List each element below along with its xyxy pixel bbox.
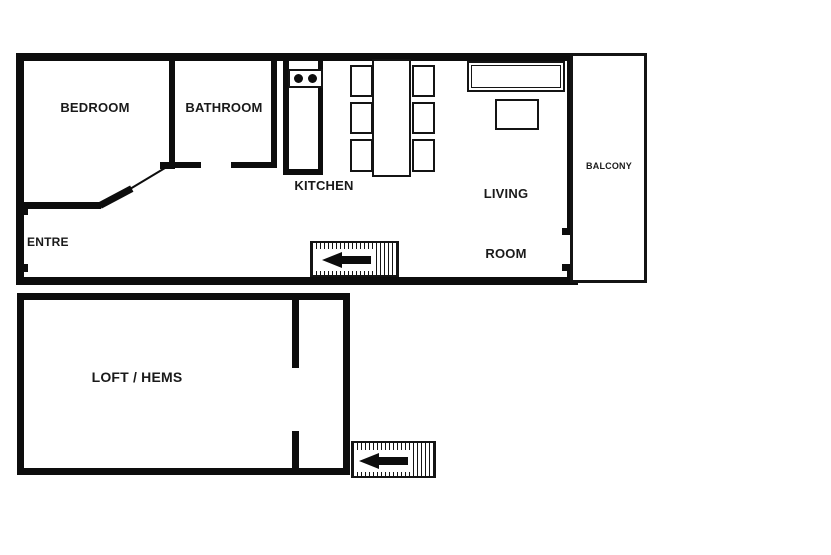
balcony-label: BALCONY (574, 161, 644, 171)
upper-wall-top (16, 53, 578, 61)
dining-table-icon (372, 59, 411, 177)
living-room-label-line2: ROOM (456, 244, 556, 264)
sofa-icon (467, 61, 565, 92)
floor-plan-canvas: BEDROOM BATHROOM KITCHEN LIVING ROOM BAL… (0, 0, 831, 555)
stairs-upper-arrow-halo (316, 249, 376, 271)
arrow-head (322, 252, 342, 268)
loft-inner-wall-bottom (292, 431, 299, 468)
dining-chair-icon (412, 139, 435, 172)
bedroom-wall-bottom (16, 202, 101, 209)
bedroom-label: BEDROOM (35, 100, 155, 115)
stove-icon (288, 69, 323, 88)
sofa-inner-line (471, 65, 561, 88)
loft-inner-wall-top (292, 300, 299, 368)
stove-burner-icon (308, 74, 317, 83)
kitchen-counter-bottom (283, 169, 323, 175)
arrow-head (359, 453, 379, 469)
arrow-shaft (379, 457, 408, 465)
dining-chair-icon (350, 139, 373, 172)
stairs-lower-arrow-left-icon (359, 453, 408, 469)
loft-label: LOFT / HEMS (57, 369, 217, 385)
dining-chair-icon (412, 102, 435, 134)
stairs-lower (351, 441, 436, 478)
bathroom-label: BATHROOM (170, 100, 278, 115)
bedroom-diagonal-wall (98, 186, 133, 209)
kitchen-label: KITCHEN (274, 178, 374, 193)
stairs-upper (310, 241, 399, 277)
coffee-table-icon (495, 99, 539, 130)
arrow-shaft (342, 256, 371, 264)
bedroom-door-line (129, 166, 167, 190)
stairs-lower-arrow-halo (355, 450, 411, 472)
entry-label: ENTRE (27, 235, 87, 249)
stairs-upper-arrow-left-icon (322, 252, 371, 268)
dining-chair-icon (412, 65, 435, 97)
bathroom-wall-bottom-left (169, 162, 201, 168)
living-room-label: LIVING ROOM (456, 144, 556, 304)
living-room-label-line1: LIVING (456, 184, 556, 204)
dining-chair-icon (350, 65, 373, 97)
entry-door-stub (22, 264, 28, 272)
upper-wall-left (16, 53, 24, 285)
dining-chair-icon (350, 102, 373, 134)
stove-burner-icon (294, 74, 303, 83)
bedroom-wall-stub (22, 209, 28, 215)
